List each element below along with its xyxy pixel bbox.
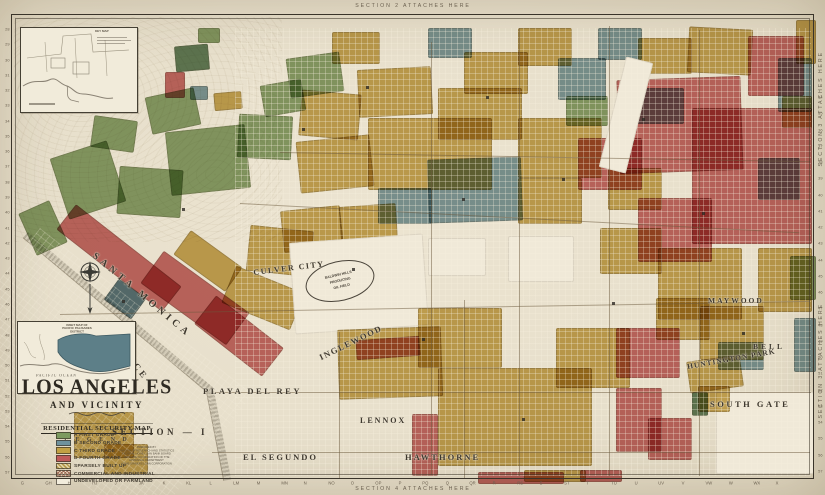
- poi-dot: [122, 300, 125, 303]
- column-letter: ST: [564, 482, 569, 486]
- column-letter: M: [257, 482, 261, 486]
- edge-number-right: 38: [818, 161, 822, 165]
- edge-number-right: 55: [818, 438, 822, 442]
- edge-number-right: 48: [818, 324, 822, 328]
- edge-number-right: 45: [818, 275, 822, 279]
- column-letter: L: [209, 482, 211, 486]
- map-region: [198, 28, 220, 43]
- edge-number-left: 39: [5, 196, 9, 200]
- road-line: [431, 42, 432, 475]
- edge-number-left: 57: [5, 471, 9, 475]
- edge-number-right: 41: [818, 210, 822, 214]
- edge-number-left: 47: [5, 318, 9, 322]
- edge-number-right: 47: [818, 307, 822, 311]
- column-letter: U: [634, 482, 637, 486]
- edge-number-left: 40: [5, 211, 9, 215]
- poi-dot: [562, 178, 565, 181]
- place-label: SOUTH GATE: [710, 399, 790, 409]
- map-region: [687, 26, 753, 75]
- edge-number-left: 50: [5, 364, 9, 368]
- edge-number-right: 43: [818, 242, 822, 246]
- column-letter: Q: [445, 482, 448, 486]
- edge-number-left: 35: [5, 135, 9, 139]
- map-region: [794, 318, 816, 372]
- map-region: [412, 414, 438, 476]
- map-region: [508, 236, 574, 282]
- road-line: [215, 392, 811, 393]
- edge-number-right: 56: [818, 454, 822, 458]
- edge-number-left: 41: [5, 227, 9, 231]
- road-line: [519, 28, 520, 476]
- column-letter: V: [681, 482, 684, 486]
- poi-dot: [366, 86, 369, 89]
- edge-number-right: 51: [818, 372, 822, 376]
- edge-number-left: 48: [5, 334, 9, 338]
- edge-number-right: 36: [818, 129, 822, 133]
- attribution-line: HOME OWNERS LOAN CORPORATION: [104, 462, 189, 465]
- legend-row: COMMERCIAL AND INDUSTRIAL: [56, 470, 175, 477]
- column-letter: O: [351, 482, 354, 486]
- attribution-block: PREPARED BYDIVISION OF RESEARCH AND STAT…: [104, 446, 189, 466]
- key-map-caption-bar: [97, 43, 125, 44]
- map-region: [295, 134, 374, 193]
- place-label: LENNOX: [360, 416, 406, 425]
- edge-label-bottom: SECTION 4 ATTACHES HERE: [355, 486, 471, 492]
- inset-caption-line: DISTRICT: [32, 330, 122, 333]
- poi-dot: [522, 418, 525, 421]
- edge-number-left: 34: [5, 120, 9, 124]
- edge-number-left: 52: [5, 395, 9, 399]
- poi-dot: [302, 128, 305, 131]
- poi-dot: [462, 198, 465, 201]
- legend-label: COMMERCIAL AND INDUSTRIAL: [74, 471, 155, 476]
- section-label: SECTION — I: [112, 427, 208, 437]
- edge-number-left: 30: [5, 59, 9, 63]
- poi-dot: [486, 96, 489, 99]
- key-map-label: KEY MAP: [95, 30, 155, 33]
- column-letter: HJ: [92, 482, 97, 486]
- poi-dot: [612, 302, 615, 305]
- edge-number-left: 42: [5, 242, 9, 246]
- legend-swatch: [56, 447, 71, 454]
- edge-number-right: 52: [818, 389, 822, 393]
- edge-number-left: 56: [5, 456, 9, 460]
- map-region: [648, 418, 692, 460]
- edge-number-right: 35: [818, 112, 822, 116]
- poi-dot: [702, 212, 705, 215]
- map-region: [790, 256, 816, 300]
- column-letter: UV: [658, 482, 664, 486]
- column-letter: QR: [470, 482, 476, 486]
- map-region: [428, 238, 486, 276]
- edge-number-right: 53: [818, 405, 822, 409]
- map-canvas: BALDWIN HILLS PRODUCING OIL FIELD SANTA …: [0, 0, 825, 495]
- edge-number-right: 49: [818, 340, 822, 344]
- legend-swatch: [56, 440, 71, 447]
- legend-label: A FIRST GRADE: [74, 433, 114, 438]
- map-region: [165, 72, 185, 98]
- road-line: [699, 30, 700, 476]
- edge-number-left: 45: [5, 288, 9, 292]
- column-letter: G: [21, 482, 24, 486]
- place-label: MAYWOOD: [708, 296, 764, 305]
- legend-swatch: [56, 463, 71, 470]
- column-letter: NO: [328, 482, 334, 486]
- column-letter: S: [540, 482, 543, 486]
- edge-number-right: 40: [818, 194, 822, 198]
- map-region: [332, 32, 380, 64]
- map-region: [174, 44, 210, 73]
- edge-number-left: 46: [5, 303, 9, 307]
- key-map-caption-bar: [97, 40, 131, 41]
- edge-number-left: 38: [5, 181, 9, 185]
- column-letter: T: [587, 482, 590, 486]
- map-region: [524, 470, 586, 482]
- map-region: [558, 58, 606, 100]
- edge-number-left: 54: [5, 425, 9, 429]
- map-region: [692, 392, 708, 416]
- edge-number-left: 32: [5, 89, 9, 93]
- map-region: [213, 91, 242, 111]
- edge-number-right: 57: [818, 470, 822, 474]
- column-letter: GH: [45, 482, 51, 486]
- map-subtitle: AND VICINITY: [13, 400, 181, 410]
- map-region: [598, 28, 642, 60]
- map-region: [758, 158, 800, 200]
- map-region: [190, 86, 208, 100]
- edge-number-left: 36: [5, 150, 9, 154]
- road-line: [339, 332, 340, 478]
- column-letter: TU: [611, 482, 617, 486]
- column-letter: PQ: [422, 482, 428, 486]
- edge-number-left: 31: [5, 74, 9, 78]
- column-letter: KL: [186, 482, 191, 486]
- legend-label: B SECOND GRADE: [74, 441, 121, 446]
- legend-swatch: [56, 455, 71, 462]
- edge-number-right: 42: [818, 226, 822, 230]
- edge-number-right: 50: [818, 356, 822, 360]
- column-letter: VW: [706, 482, 713, 486]
- legend-swatch: [56, 470, 71, 477]
- shoreline-el-segundo: [207, 391, 231, 481]
- edge-number-right: 46: [818, 291, 822, 295]
- map-title: LOS ANGELES: [13, 376, 181, 398]
- edge-label-right-lower: SECTION 3 ATTACHES HERE: [818, 303, 824, 419]
- edge-number-right: 44: [818, 259, 822, 263]
- column-letter: K: [162, 482, 165, 486]
- poi-dot: [182, 208, 185, 211]
- column-letter: LM: [234, 482, 240, 486]
- compass-rose-icon: [72, 256, 108, 316]
- column-letter: JK: [139, 482, 144, 486]
- map-region: [237, 114, 293, 161]
- edge-number-left: 43: [5, 257, 9, 261]
- edge-number-left: 55: [5, 440, 9, 444]
- place-label: HAWTHORNE: [405, 452, 480, 462]
- column-letter: H: [68, 482, 71, 486]
- edge-number-right: 39: [818, 177, 822, 181]
- column-letter: R: [493, 482, 496, 486]
- column-letter: WX: [753, 482, 760, 486]
- column-letter: OP: [375, 482, 381, 486]
- map-region: [357, 66, 433, 118]
- edge-number-left: 33: [5, 104, 9, 108]
- key-map-caption-bar: [97, 37, 127, 38]
- map-region: [782, 96, 812, 128]
- edge-number-left: 29: [5, 43, 9, 47]
- map-region: [90, 115, 138, 153]
- legend-swatch: [56, 432, 71, 439]
- poi-dot: [642, 118, 645, 121]
- edge-number-left: 51: [5, 379, 9, 383]
- edge-number-left: 37: [5, 166, 9, 170]
- map-region: [298, 89, 362, 140]
- edge-label-top: SECTION 2 ATTACHES HERE: [355, 3, 471, 9]
- road-line: [609, 26, 610, 476]
- key-map-inset: KEY MAP: [20, 27, 138, 113]
- column-letter: P: [398, 482, 401, 486]
- place-label: PLAYA DEL REY: [203, 386, 302, 396]
- edge-number-left: 44: [5, 272, 9, 276]
- poi-dot: [742, 332, 745, 335]
- poi-dot: [422, 338, 425, 341]
- edge-label-right-upper: SECTION 3 ATTACHES HERE: [818, 51, 824, 167]
- column-letter: X: [776, 482, 779, 486]
- edge-number-left: 53: [5, 410, 9, 414]
- column-letter: N: [304, 482, 307, 486]
- edge-number-left: 28: [5, 28, 9, 32]
- column-letter: RS: [517, 482, 523, 486]
- map-region: [580, 470, 622, 482]
- oil-field-line: OIL FIELD: [333, 283, 350, 290]
- edge-number-left: 49: [5, 349, 9, 353]
- column-letter: W: [729, 482, 733, 486]
- edge-number-right: 37: [818, 145, 822, 149]
- place-label: EL SEGUNDO: [243, 452, 318, 462]
- edge-number-right: 34: [818, 96, 822, 100]
- column-letter: MN: [281, 482, 288, 486]
- edge-number-right: 54: [818, 421, 822, 425]
